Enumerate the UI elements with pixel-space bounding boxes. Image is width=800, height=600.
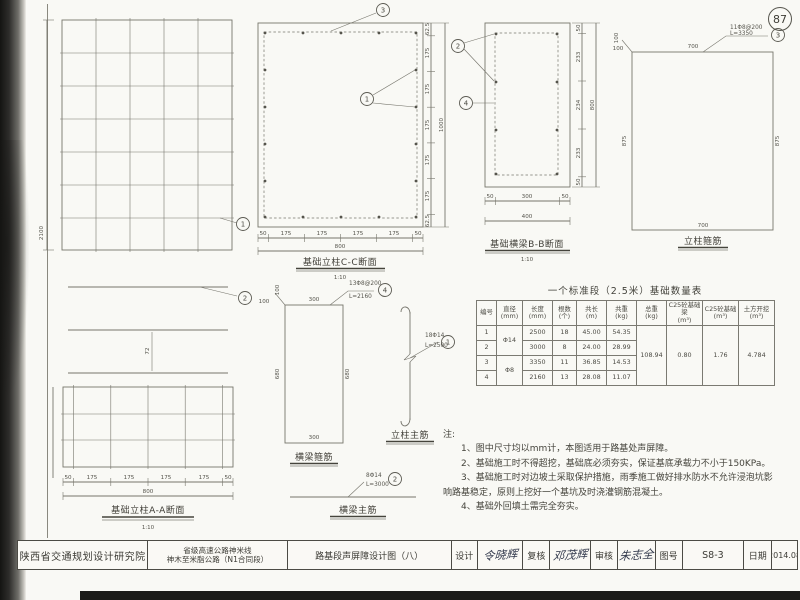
dim-label: 50 <box>224 475 232 481</box>
dim-label: 100 <box>613 46 624 52</box>
drawing-sheet: 87 2100 1 2 72 <box>0 0 800 600</box>
dim-label: 50 <box>64 475 72 481</box>
cell-total-weight: 28.99 <box>607 341 637 356</box>
dim-label: 175 <box>199 475 210 481</box>
dim-label: 175 <box>425 119 431 130</box>
dim-label: 50 <box>486 194 494 200</box>
dim-label: 50 <box>576 24 582 32</box>
cell-count: 13 <box>553 371 577 386</box>
dim-label: 50 <box>576 178 582 186</box>
col-header: 直径(mm) <box>497 301 523 326</box>
callout-number: 4 <box>383 287 388 295</box>
drawing-scale: 1:10 <box>521 257 534 263</box>
aa-lower-section-drawing: 2 72 50 175 175 175 175 50 800 基础立柱A-A断面 <box>40 268 262 536</box>
quantity-table: 编号 直径(mm) 长度(mm) 根数(个) 共长(m) 共重(kg) 总重(k… <box>476 300 775 386</box>
col-header: 编号 <box>477 301 497 326</box>
cell-length: 2160 <box>523 371 553 386</box>
cell-total-length: 24.00 <box>577 341 607 356</box>
cell-diameter: Φ14 <box>497 326 523 356</box>
note-line: 响路基稳定，原则上挖好一个基坑及时浇灌钢筋混凝土。 <box>443 486 799 500</box>
dim-label: 233 <box>576 147 582 158</box>
cell-no: 2 <box>477 341 497 356</box>
dim-label: 233 <box>576 51 582 62</box>
note-line: 2、基础施工时不得超挖，基础底必须夯实，保证基底承载力不小于150KPa。 <box>443 457 799 471</box>
dim-label: 700 <box>688 44 699 50</box>
cell-total-weight: 14.53 <box>607 356 637 371</box>
dim-label: 175 <box>161 475 172 481</box>
dim-label: 800 <box>143 489 154 495</box>
dim-label: 50 <box>414 231 422 237</box>
col-header: 长度(mm) <box>523 301 553 326</box>
drawing-title: 立柱箍筋 <box>684 235 722 247</box>
dim-label: 800 <box>590 99 596 110</box>
cell-length: 2500 <box>523 326 553 341</box>
dim-label: 875 <box>775 135 781 146</box>
dim-label: 700 <box>698 223 709 229</box>
note-line: 3、基础施工时对边坡土采取保护措施，雨季施工做好排水防水不允许浸泡坑影 <box>443 471 799 485</box>
dim-label: 175 <box>425 154 431 165</box>
cell-grand-total: 108.94 <box>637 326 667 386</box>
rebar-spec: 8Φ14 <box>366 473 382 479</box>
dim-label: 234 <box>576 99 582 110</box>
col-header: 共长(m) <box>577 301 607 326</box>
dim-label: 62.5 <box>425 22 431 35</box>
callout-number: 1 <box>446 339 450 347</box>
callout-number: 4 <box>464 100 469 108</box>
cell-c25-foundation: 1.76 <box>703 326 739 386</box>
project-name: 省级高速公路神米线 神木至米脂公路（N1合同段） <box>147 541 286 569</box>
cell-count: 8 <box>553 341 577 356</box>
cell-total-weight: 11.07 <box>607 371 637 386</box>
drawing-title: 横梁主筋 <box>339 504 377 516</box>
dim-label: 1000 <box>439 117 445 132</box>
col-header: C25砼基础梁(m³) <box>667 301 703 326</box>
cell-earthwork: 4.784 <box>739 326 775 386</box>
dim-label: 300 <box>309 435 320 441</box>
review-signature: 朱志全 <box>617 541 655 569</box>
drawing-title: 基础立柱A-A断面 <box>111 504 185 516</box>
dim-label: 2100 <box>39 225 45 240</box>
project-line2: 神木至米脂公路（N1合同段） <box>167 555 269 564</box>
bb-section-drawing: 2 4 50 233 234 233 50 800 50 300 50 400 … <box>450 8 610 266</box>
cell-count: 11 <box>553 356 577 371</box>
rebar-length: L=3000 <box>366 482 389 488</box>
quantity-table-section: 一个标准段（2.5米）基础数量表 编号 直径(mm) 长度(mm) 根数(个) … <box>476 283 774 386</box>
rebar-spec: 13Φ8@200 <box>349 281 382 287</box>
dim-label: 400 <box>522 214 533 220</box>
col-header: 总重(kg) <box>637 301 667 326</box>
cc-section-drawing: 3 1 62.5 175 175 175 175 175 62.5 1000 5… <box>246 0 458 282</box>
callout-number: 3 <box>381 7 385 15</box>
design-label: 设计 <box>451 541 477 569</box>
column-stirrup-drawing: 100 100 700 700 875 875 11Φ8@200 L=3350 … <box>608 22 800 254</box>
dim-label: 50 <box>561 194 569 200</box>
dim-label: 300 <box>309 297 320 303</box>
cell-no: 4 <box>477 371 497 386</box>
cell-diameter: Φ8 <box>497 356 523 386</box>
rebar-length: L=3350 <box>730 31 753 37</box>
dim-label: 175 <box>353 231 364 237</box>
check-signature: 邓茂辉 <box>549 541 590 569</box>
drawing-scale: 1:10 <box>142 525 155 531</box>
callout-number: 2 <box>393 476 397 484</box>
callout-number: 3 <box>776 32 780 40</box>
dim-label: 800 <box>335 244 346 250</box>
col-header: 根数(个) <box>553 301 577 326</box>
dim-label: 72 <box>145 347 151 354</box>
dim-label: 175 <box>425 47 431 58</box>
dim-label: 100 <box>275 284 281 295</box>
beam-main-rebar-drawing: 8Φ14 L=3000 2 横梁主筋 <box>278 455 448 523</box>
cell-total-length: 45.00 <box>577 326 607 341</box>
scan-bottom-edge <box>80 591 800 600</box>
dim-label: 680 <box>345 368 351 379</box>
dim-label: 875 <box>622 135 628 146</box>
drawing-title: 基础横梁B-B断面 <box>490 238 564 250</box>
dim-label: 175 <box>389 231 400 237</box>
drawing-title: 基础立柱C-C断面 <box>303 256 377 268</box>
title-block: 陕西省交通规划设计研究院 省级高速公路神米线 神木至米脂公路（N1合同段） 路基… <box>17 540 798 570</box>
dim-label: 175 <box>281 231 292 237</box>
cell-no: 1 <box>477 326 497 341</box>
dim-label: 175 <box>124 475 135 481</box>
sheet-title: 路基段声屏障设计图（八） <box>287 541 451 569</box>
institute-name: 陕西省交通规划设计研究院 <box>18 541 147 569</box>
callout-number: 2 <box>456 43 460 51</box>
dim-label: 300 <box>522 194 533 200</box>
callout-number: 2 <box>243 295 247 303</box>
drawing-no-label: 图号 <box>655 541 682 569</box>
callout-number: 1 <box>241 221 245 229</box>
dim-label: 62.5 <box>425 214 431 227</box>
cell-length: 3000 <box>523 341 553 356</box>
cell-total-length: 28.08 <box>577 371 607 386</box>
dim-label: 100 <box>614 32 620 43</box>
cell-total-weight: 54.35 <box>607 326 637 341</box>
dim-label: 680 <box>275 368 281 379</box>
aa-upper-elevation-drawing: 2100 1 <box>40 8 255 266</box>
dim-label: 175 <box>425 190 431 201</box>
project-line1: 省级高速公路神米线 <box>183 546 251 555</box>
check-label: 复核 <box>522 541 549 569</box>
design-signature: 令晓辉 <box>477 541 523 569</box>
drawing-title: 立柱主筋 <box>391 429 429 441</box>
dim-label: 175 <box>425 83 431 94</box>
review-label: 审核 <box>590 541 617 569</box>
scan-artifact <box>0 140 30 400</box>
col-header: C25砼基础(m³) <box>703 301 739 326</box>
drawing-no: S8-3 <box>682 541 744 569</box>
rebar-spec: 18Φ14 <box>425 333 445 339</box>
note-line: 4、基础外回填土需完全夯实。 <box>443 500 799 514</box>
col-header: 土方开挖(m³) <box>739 301 775 326</box>
cell-c25-beam: 0.80 <box>667 326 703 386</box>
date-value: 2014.08 <box>771 541 797 569</box>
dim-label: 50 <box>259 231 267 237</box>
cell-total-length: 36.85 <box>577 356 607 371</box>
cell-length: 3350 <box>523 356 553 371</box>
callout-number: 1 <box>365 96 369 104</box>
cell-no: 3 <box>477 356 497 371</box>
cell-count: 18 <box>553 326 577 341</box>
notes-label: 注: <box>443 428 799 442</box>
dim-label: 175 <box>317 231 328 237</box>
table-header-row: 编号 直径(mm) 长度(mm) 根数(个) 共长(m) 共重(kg) 总重(k… <box>477 301 775 326</box>
table-row: 1 Φ14 2500 18 45.00 54.35 108.94 0.80 1.… <box>477 326 775 341</box>
dim-label: 175 <box>87 475 98 481</box>
date-label: 日期 <box>743 541 771 569</box>
quantity-table-title: 一个标准段（2.5米）基础数量表 <box>476 283 774 297</box>
dim-label: 100 <box>259 299 270 305</box>
note-line: 1、图中尺寸均以mm计，本图适用于路基处声屏障。 <box>443 442 799 456</box>
notes-section: 注: 1、图中尺寸均以mm计，本图适用于路基处声屏障。 2、基础施工时不得超挖，… <box>443 428 799 514</box>
col-header: 共重(kg) <box>607 301 637 326</box>
